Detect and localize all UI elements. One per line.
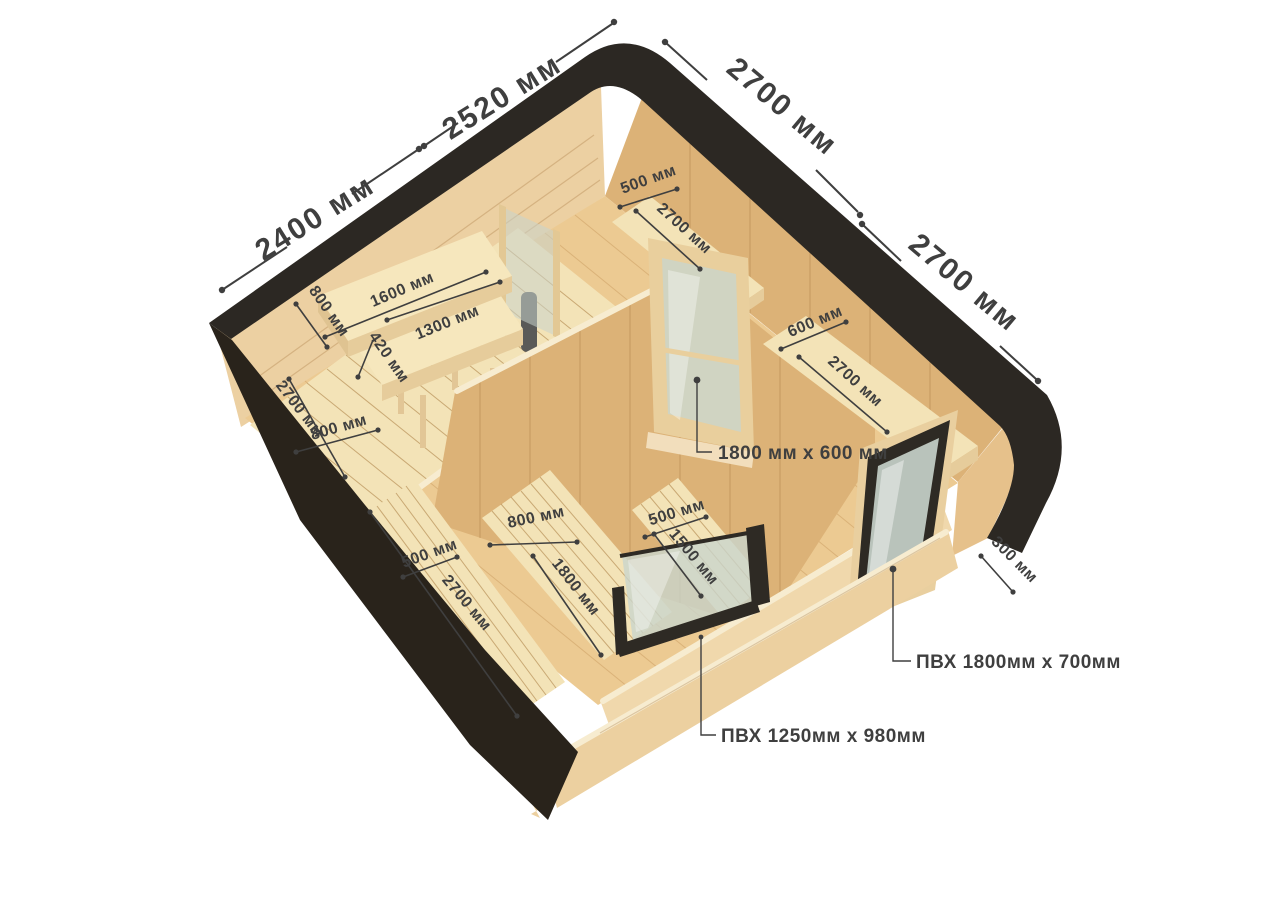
interior-glass-door bbox=[646, 238, 754, 468]
callout-label: 1800 мм x 600 мм bbox=[718, 443, 888, 464]
callout-label: ПВХ 1800мм x 700мм bbox=[916, 652, 1121, 673]
callout-label: ПВХ 1250мм x 980мм bbox=[721, 726, 926, 747]
dim-wall-300: 300 мм bbox=[978, 533, 1040, 594]
isometric-cabin-diagram: 2400 мм 2520 мм 2700 мм 2700 мм bbox=[0, 0, 1280, 905]
diagram-canvas: 2400 мм 2520 мм 2700 мм 2700 мм bbox=[0, 0, 1280, 905]
